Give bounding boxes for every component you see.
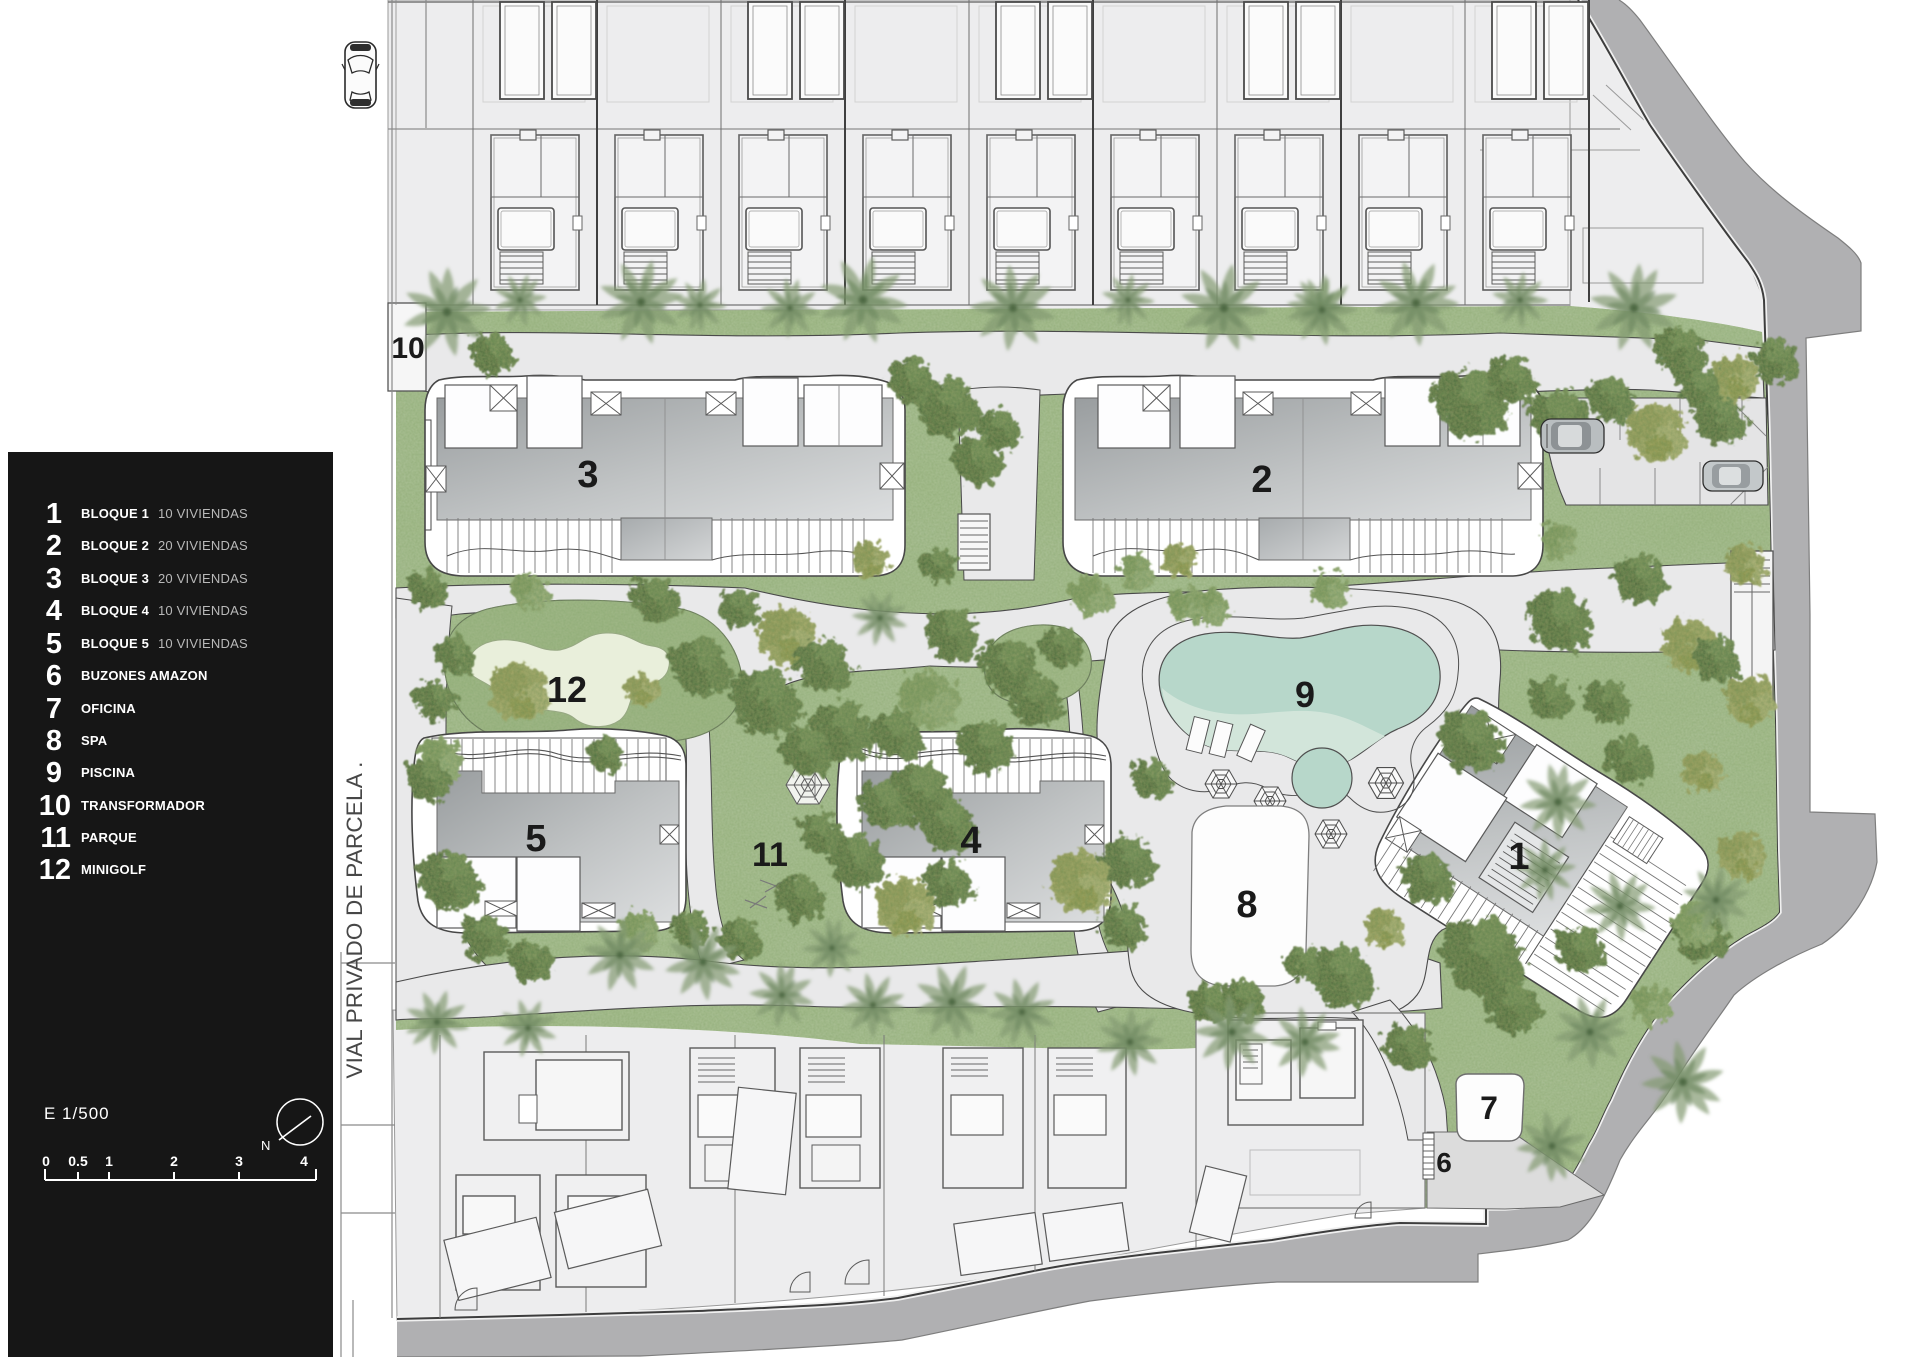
svg-text:9: 9 [1295, 674, 1315, 715]
svg-text:8: 8 [1236, 884, 1257, 926]
svg-text:7: 7 [46, 693, 62, 725]
svg-text:2: 2 [1251, 459, 1272, 501]
svg-text:12: 12 [39, 854, 71, 886]
svg-text:5: 5 [525, 818, 546, 860]
svg-text:0: 0 [42, 1153, 50, 1169]
svg-text:TRANSFORMADOR: TRANSFORMADOR [81, 798, 205, 813]
svg-text:9: 9 [46, 757, 62, 789]
svg-text:PISCINA: PISCINA [81, 765, 136, 780]
svg-text:6: 6 [1436, 1147, 1452, 1178]
svg-text:8: 8 [46, 725, 62, 757]
svg-text:3: 3 [46, 563, 62, 595]
svg-text:2: 2 [170, 1153, 178, 1169]
svg-text:BLOQUE 5: BLOQUE 5 [81, 636, 149, 651]
svg-text:12: 12 [547, 669, 587, 710]
svg-text:BLOQUE 3: BLOQUE 3 [81, 571, 149, 586]
svg-text:11: 11 [752, 836, 788, 874]
svg-text:7: 7 [1480, 1090, 1498, 1126]
svg-text:BLOQUE 1: BLOQUE 1 [81, 506, 149, 521]
svg-text:10: 10 [39, 790, 71, 822]
svg-text:4: 4 [46, 595, 62, 627]
svg-text:1: 1 [46, 498, 62, 530]
svg-text:11: 11 [40, 822, 71, 854]
svg-text:20 VIVIENDAS: 20 VIVIENDAS [158, 538, 248, 553]
svg-text:N: N [261, 1138, 270, 1153]
svg-text:0.5: 0.5 [68, 1153, 88, 1169]
svg-text:10 VIVIENDAS: 10 VIVIENDAS [158, 506, 248, 521]
svg-text:10 VIVIENDAS: 10 VIVIENDAS [158, 636, 248, 651]
svg-text:PARQUE: PARQUE [81, 830, 137, 845]
svg-text:E 1/500: E 1/500 [44, 1104, 110, 1123]
svg-text:3: 3 [577, 454, 598, 496]
svg-text:5: 5 [46, 628, 62, 660]
svg-text:BLOQUE 4: BLOQUE 4 [81, 603, 150, 618]
svg-text:BUZONES AMAZON: BUZONES AMAZON [81, 668, 208, 683]
svg-text:3: 3 [235, 1153, 243, 1169]
svg-text:4: 4 [960, 820, 981, 862]
svg-text:10 VIVIENDAS: 10 VIVIENDAS [158, 603, 248, 618]
svg-text:10: 10 [391, 332, 424, 365]
svg-text:2: 2 [46, 530, 62, 562]
svg-text:20 VIVIENDAS: 20 VIVIENDAS [158, 571, 248, 586]
svg-text:4: 4 [300, 1153, 308, 1169]
svg-text:6: 6 [46, 660, 62, 692]
svg-text:MINIGOLF: MINIGOLF [81, 862, 146, 877]
svg-text:BLOQUE 2: BLOQUE 2 [81, 538, 149, 553]
svg-text:1: 1 [105, 1153, 113, 1169]
svg-text:1: 1 [1508, 836, 1529, 878]
svg-text:SPA: SPA [81, 733, 108, 748]
svg-text:OFICINA: OFICINA [81, 701, 136, 716]
svg-text:VIAL PRIVADO DE PARCELA .: VIAL PRIVADO DE PARCELA . [342, 761, 367, 1078]
